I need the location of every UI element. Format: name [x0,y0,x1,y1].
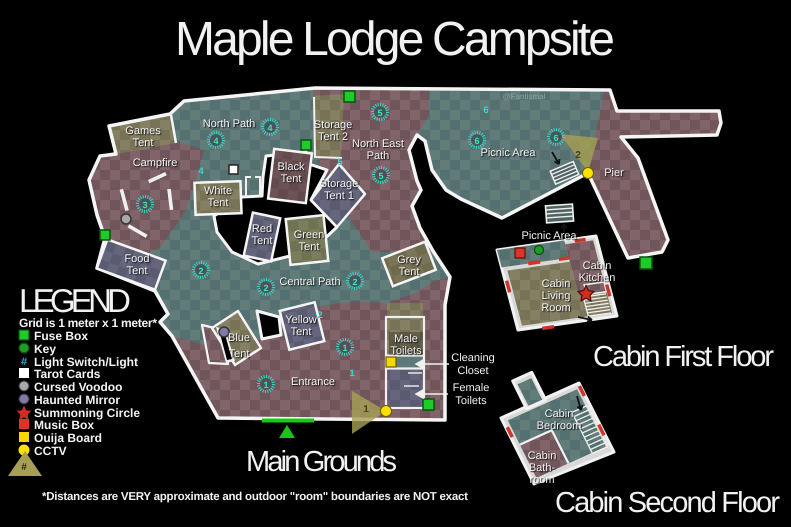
svg-text:Bath-: Bath- [529,462,556,474]
svg-text:4: 4 [198,166,204,177]
svg-text:Cleaning: Cleaning [451,352,494,364]
svg-text:Cabin: Cabin [528,450,557,462]
svg-text:Female: Female [453,382,490,394]
svg-text:@Fantismal: @Fantismal [503,92,546,101]
svg-text:Tent: Tent [291,326,312,338]
svg-text:North Path: North Path [203,118,256,130]
svg-text:Fuse Box: Fuse Box [34,329,88,343]
svg-text:2: 2 [317,310,322,321]
svg-text:Cabin: Cabin [583,260,612,272]
svg-text:Picnic Area: Picnic Area [480,147,536,159]
svg-text:Storage: Storage [314,119,353,131]
svg-text:Black: Black [278,161,305,173]
svg-text:Food: Food [124,253,149,265]
svg-text:White: White [204,185,232,197]
svg-text:1: 1 [349,368,355,379]
svg-text:4: 4 [213,136,218,146]
svg-text:Tarot Cards: Tarot Cards [34,367,101,381]
svg-text:Red: Red [252,223,272,235]
svg-text:2: 2 [352,277,357,287]
svg-text:Toilets: Toilets [390,345,422,357]
svg-text:3: 3 [142,200,147,210]
svg-text:6: 6 [553,133,558,143]
svg-text:Tent: Tent [299,241,320,253]
svg-text:5: 5 [378,171,383,181]
svg-text:Cursed Voodoo: Cursed Voodoo [34,380,122,394]
svg-text:Main Grounds: Main Grounds [246,446,398,478]
svg-text:6: 6 [483,105,488,116]
svg-text:Yellow: Yellow [285,314,316,326]
svg-text:Central Path: Central Path [279,276,340,288]
svg-text:Campfire: Campfire [133,157,178,169]
svg-text:4: 4 [267,123,272,133]
svg-text:Tent 1: Tent 1 [324,190,354,202]
svg-text:Living: Living [542,290,571,302]
svg-text:room: room [529,474,554,486]
svg-text:Room: Room [541,302,570,314]
svg-text:Games: Games [125,125,161,137]
svg-text:#: # [21,356,27,368]
svg-text:1: 1 [263,380,268,390]
svg-text:Maple Lodge Campsite: Maple Lodge Campsite [175,13,615,66]
svg-text:Path: Path [367,150,390,162]
svg-text:Music Box: Music Box [34,418,94,432]
svg-text:Tent: Tent [281,173,302,185]
svg-text:2: 2 [263,283,268,293]
svg-text:Tent 2: Tent 2 [318,131,348,143]
svg-text:Blue: Blue [228,332,250,344]
svg-text:Entrance: Entrance [291,376,335,388]
svg-text:Grey: Grey [397,254,421,266]
svg-text:*Distances are VERY approximat: *Distances are VERY approximate and outd… [42,491,468,503]
svg-text:6: 6 [474,136,479,146]
svg-text:2: 2 [198,266,203,276]
svg-text:Storage: Storage [320,178,359,190]
svg-text:2: 2 [575,150,581,161]
svg-text:Pier: Pier [604,167,624,179]
svg-text:Cabin Second Floor: Cabin Second Floor [555,487,781,519]
svg-text:North East: North East [352,138,404,150]
svg-text:Tent: Tent [133,137,154,149]
svg-text:5: 5 [377,108,382,118]
svg-text:Tent: Tent [208,197,229,209]
svg-text:Ouija Board: Ouija Board [34,431,102,445]
svg-text:#: # [21,462,27,473]
svg-text:5: 5 [337,157,343,168]
svg-text:Haunted Mirror: Haunted Mirror [34,393,120,407]
svg-text:Male: Male [394,333,418,345]
svg-text:Picnic Area: Picnic Area [521,230,577,242]
svg-text:Green: Green [294,229,325,241]
svg-text:Kitchen: Kitchen [579,272,616,284]
svg-text:Cabin: Cabin [545,408,574,420]
svg-text:CCTV: CCTV [34,444,67,458]
svg-text:Tent: Tent [252,235,273,247]
svg-text:Cabin: Cabin [542,278,571,290]
svg-text:Tent: Tent [229,348,250,360]
svg-text:LEGEND: LEGEND [19,282,131,319]
svg-text:Tent: Tent [127,265,148,277]
svg-text:Grid is 1 meter x 1 meter*: Grid is 1 meter x 1 meter* [19,316,157,330]
svg-text:Toilets: Toilets [455,395,487,407]
svg-text:Key: Key [34,342,56,356]
svg-text:Closet: Closet [457,365,488,377]
svg-text:1: 1 [363,404,369,415]
svg-text:Bedroom: Bedroom [537,420,582,432]
svg-text:Tent: Tent [399,266,420,278]
svg-text:Cabin First Floor: Cabin First Floor [593,341,775,373]
svg-text:1: 1 [342,343,347,353]
